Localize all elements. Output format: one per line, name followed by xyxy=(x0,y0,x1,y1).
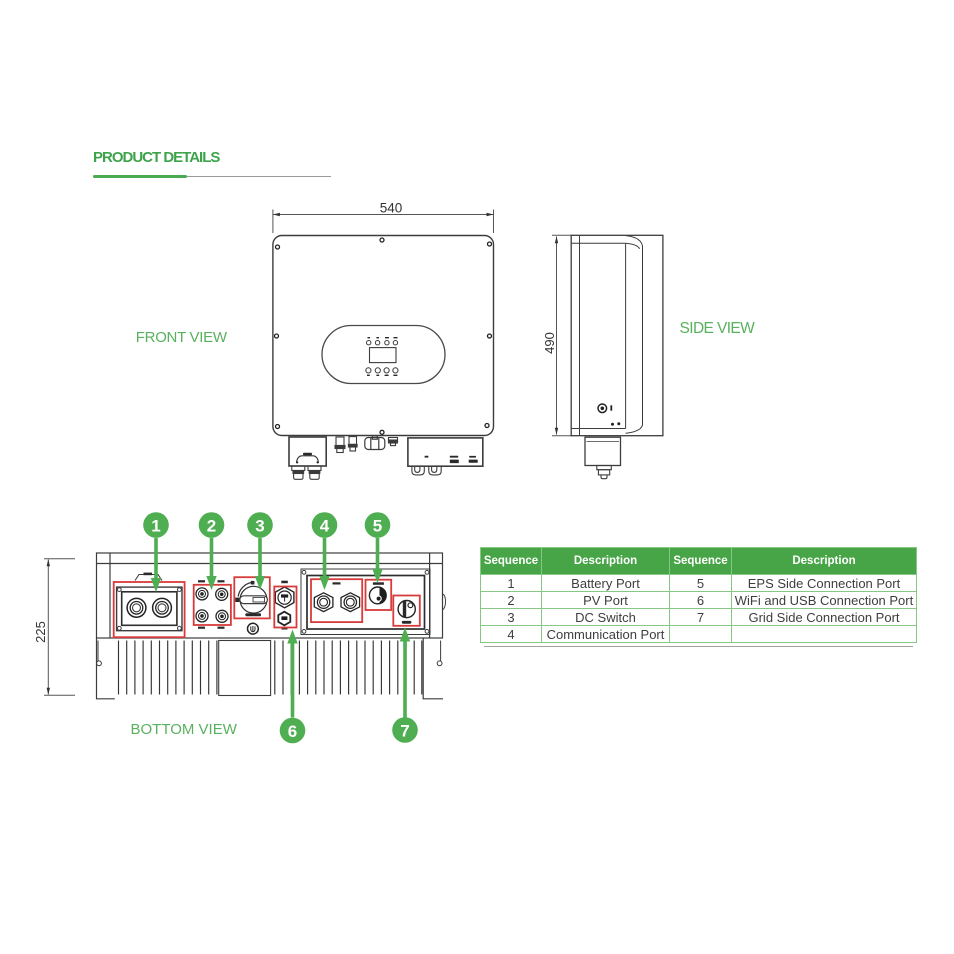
svg-text:1: 1 xyxy=(151,517,160,536)
svg-text:5: 5 xyxy=(373,517,382,536)
svg-text:540: 540 xyxy=(380,201,403,216)
svg-text:6: 6 xyxy=(288,722,297,741)
svg-text:2: 2 xyxy=(207,517,216,536)
svg-text:3: 3 xyxy=(255,517,264,536)
svg-text:490: 490 xyxy=(542,332,557,354)
svg-text:4: 4 xyxy=(320,517,330,536)
svg-text:225: 225 xyxy=(33,621,48,643)
svg-text:7: 7 xyxy=(400,722,409,741)
